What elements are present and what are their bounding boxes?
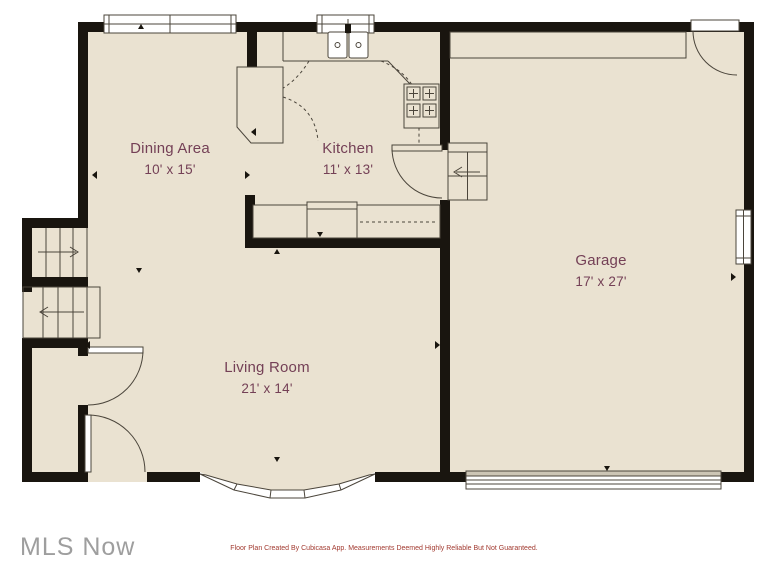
room-label-living: Living Room 21' x 14' bbox=[224, 357, 310, 399]
room-label-dining: Dining Area 10' x 15' bbox=[130, 138, 210, 180]
garage-window bbox=[736, 210, 751, 264]
room-label-garage: Garage 17' x 27' bbox=[575, 250, 626, 292]
garage-workbench bbox=[450, 32, 686, 58]
bay-window bbox=[200, 472, 375, 498]
footer-disclaimer: Floor Plan Created By Cubicasa App. Meas… bbox=[230, 545, 537, 552]
room-dims: 17' x 27' bbox=[575, 271, 626, 292]
room-name: Dining Area bbox=[130, 138, 210, 159]
room-label-kitchen: Kitchen 11' x 13' bbox=[322, 138, 373, 180]
garage-entry-steps bbox=[448, 143, 487, 200]
dining-window bbox=[104, 15, 236, 33]
room-dims: 21' x 14' bbox=[224, 378, 310, 399]
floor-plan-drawing bbox=[0, 0, 768, 576]
watermark-logo: MLS Now bbox=[20, 533, 135, 562]
room-name: Kitchen bbox=[322, 138, 373, 159]
room-name: Garage bbox=[575, 250, 626, 271]
stove-icon bbox=[404, 84, 439, 128]
room-name: Living Room bbox=[224, 357, 310, 378]
garage-overhead-door bbox=[466, 471, 721, 489]
kitchen-lower-counter bbox=[253, 202, 440, 238]
floor-areas bbox=[23, 32, 744, 482]
room-dims: 10' x 15' bbox=[130, 159, 210, 180]
floor-plan-canvas: Dining Area 10' x 15' Kitchen 11' x 13' … bbox=[0, 0, 768, 576]
peninsula-counter bbox=[237, 67, 283, 143]
room-dims: 11' x 13' bbox=[322, 159, 373, 180]
